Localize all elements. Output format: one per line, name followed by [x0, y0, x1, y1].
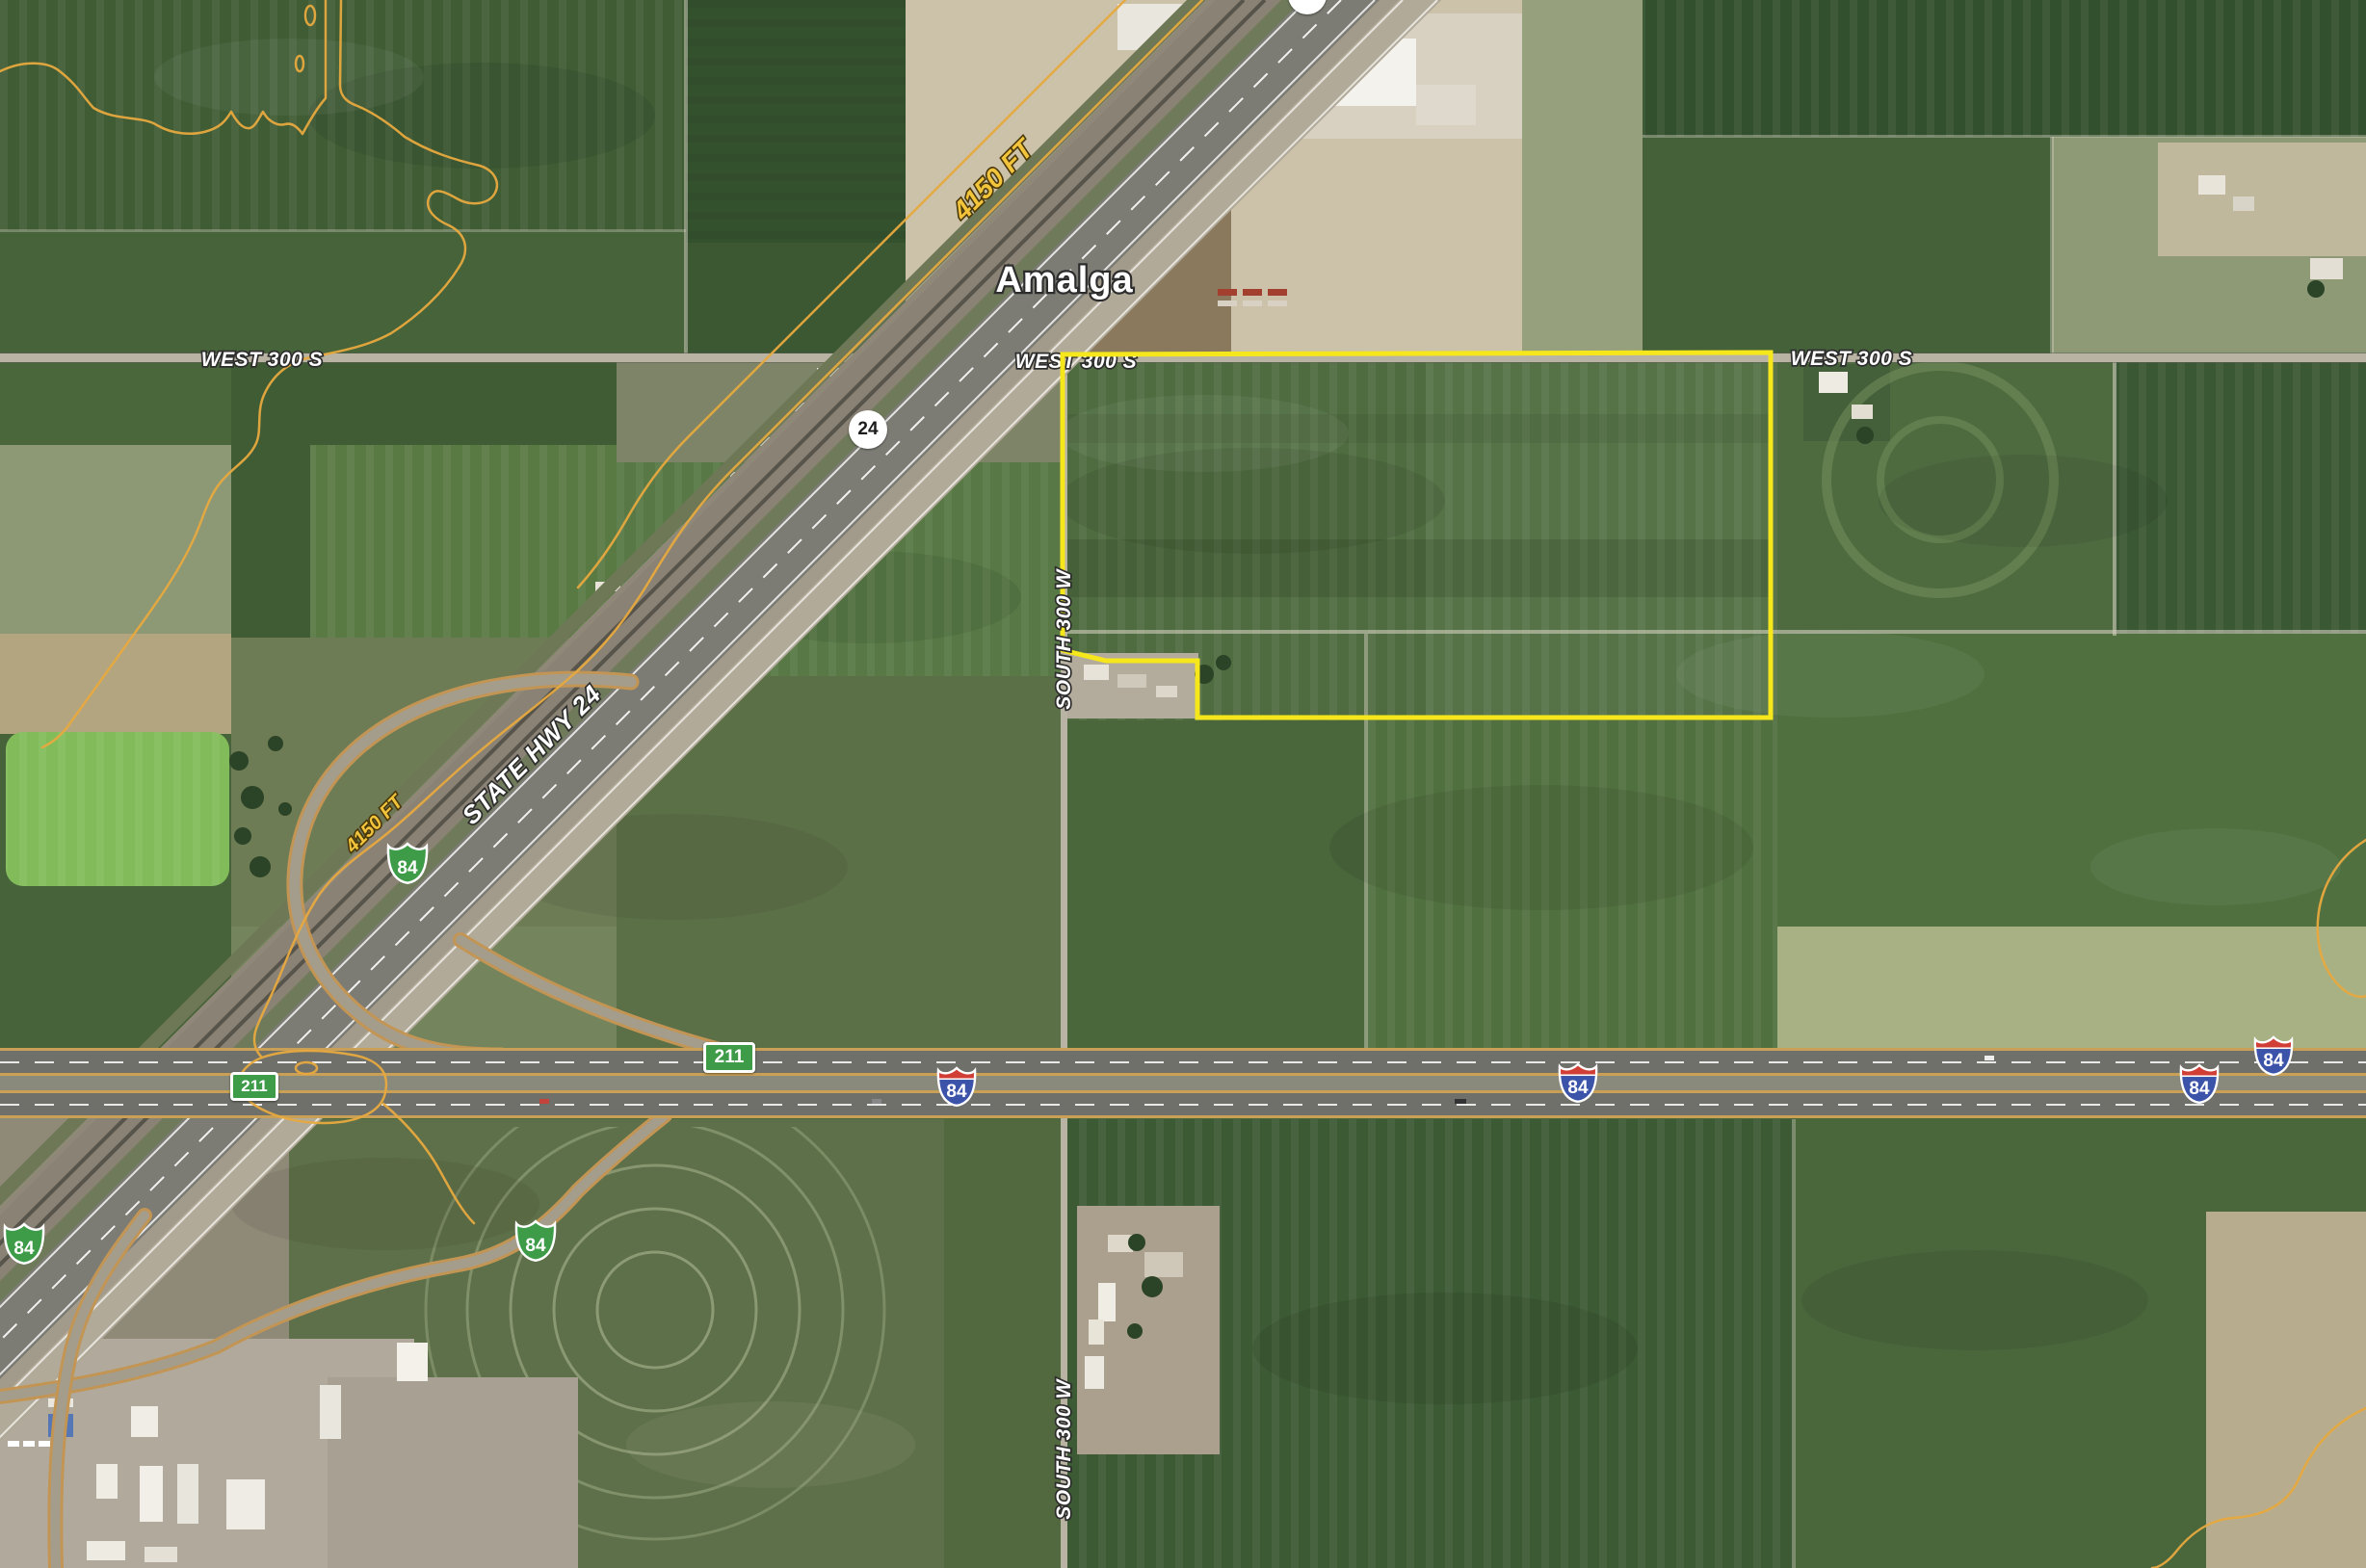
- route-211-number: 211: [241, 1077, 267, 1096]
- route-211-sign: 211: [703, 1042, 755, 1073]
- interstate-84-shield: 84: [2253, 1034, 2294, 1077]
- interstate-84-shield: 84: [1558, 1061, 1598, 1104]
- business-loop-84-shield: 84: [514, 1218, 557, 1263]
- business-loop-84-number: 84: [397, 849, 417, 877]
- interstate-84-number: 84: [1567, 1069, 1588, 1097]
- interstate-84-freeway: [0, 1048, 2366, 1118]
- interstate-84-shield: 84: [936, 1065, 977, 1108]
- route-211-sign: 211: [230, 1072, 278, 1101]
- road-label-south-300-w-bottom: SOUTH 300 W: [1053, 1378, 1075, 1520]
- business-loop-84-shield: 84: [3, 1221, 45, 1266]
- satellite-map[interactable]: WEST 300 S WEST 300 S Amalga WEST 300 S …: [0, 0, 2366, 1568]
- business-loop-84-number: 84: [525, 1227, 545, 1255]
- interstate-84-shield: 84: [2179, 1062, 2220, 1105]
- interstate-84-number: 84: [2189, 1070, 2209, 1098]
- road-label-west-300-s-left: WEST 300 S: [201, 349, 323, 371]
- interstate-84-number: 84: [2263, 1042, 2283, 1070]
- road-label-west-300-s-right: WEST 300 S: [1791, 348, 1912, 370]
- state-route-24-number: 24: [1297, 0, 1317, 6]
- interstate-84-number: 84: [946, 1073, 966, 1101]
- route-211-number: 211: [715, 1047, 745, 1068]
- business-loop-84-shield: 84: [386, 841, 429, 885]
- road-label-south-300-w-top: SOUTH 300 W: [1053, 568, 1075, 710]
- town-label-amalga: Amalga: [995, 260, 1133, 301]
- satellite-imagery: WEST 300 S WEST 300 S Amalga WEST 300 S …: [0, 0, 2366, 1568]
- state-route-24-number: 24: [857, 419, 878, 440]
- business-loop-84-number: 84: [13, 1230, 34, 1258]
- state-route-24-shield: 24: [849, 410, 887, 449]
